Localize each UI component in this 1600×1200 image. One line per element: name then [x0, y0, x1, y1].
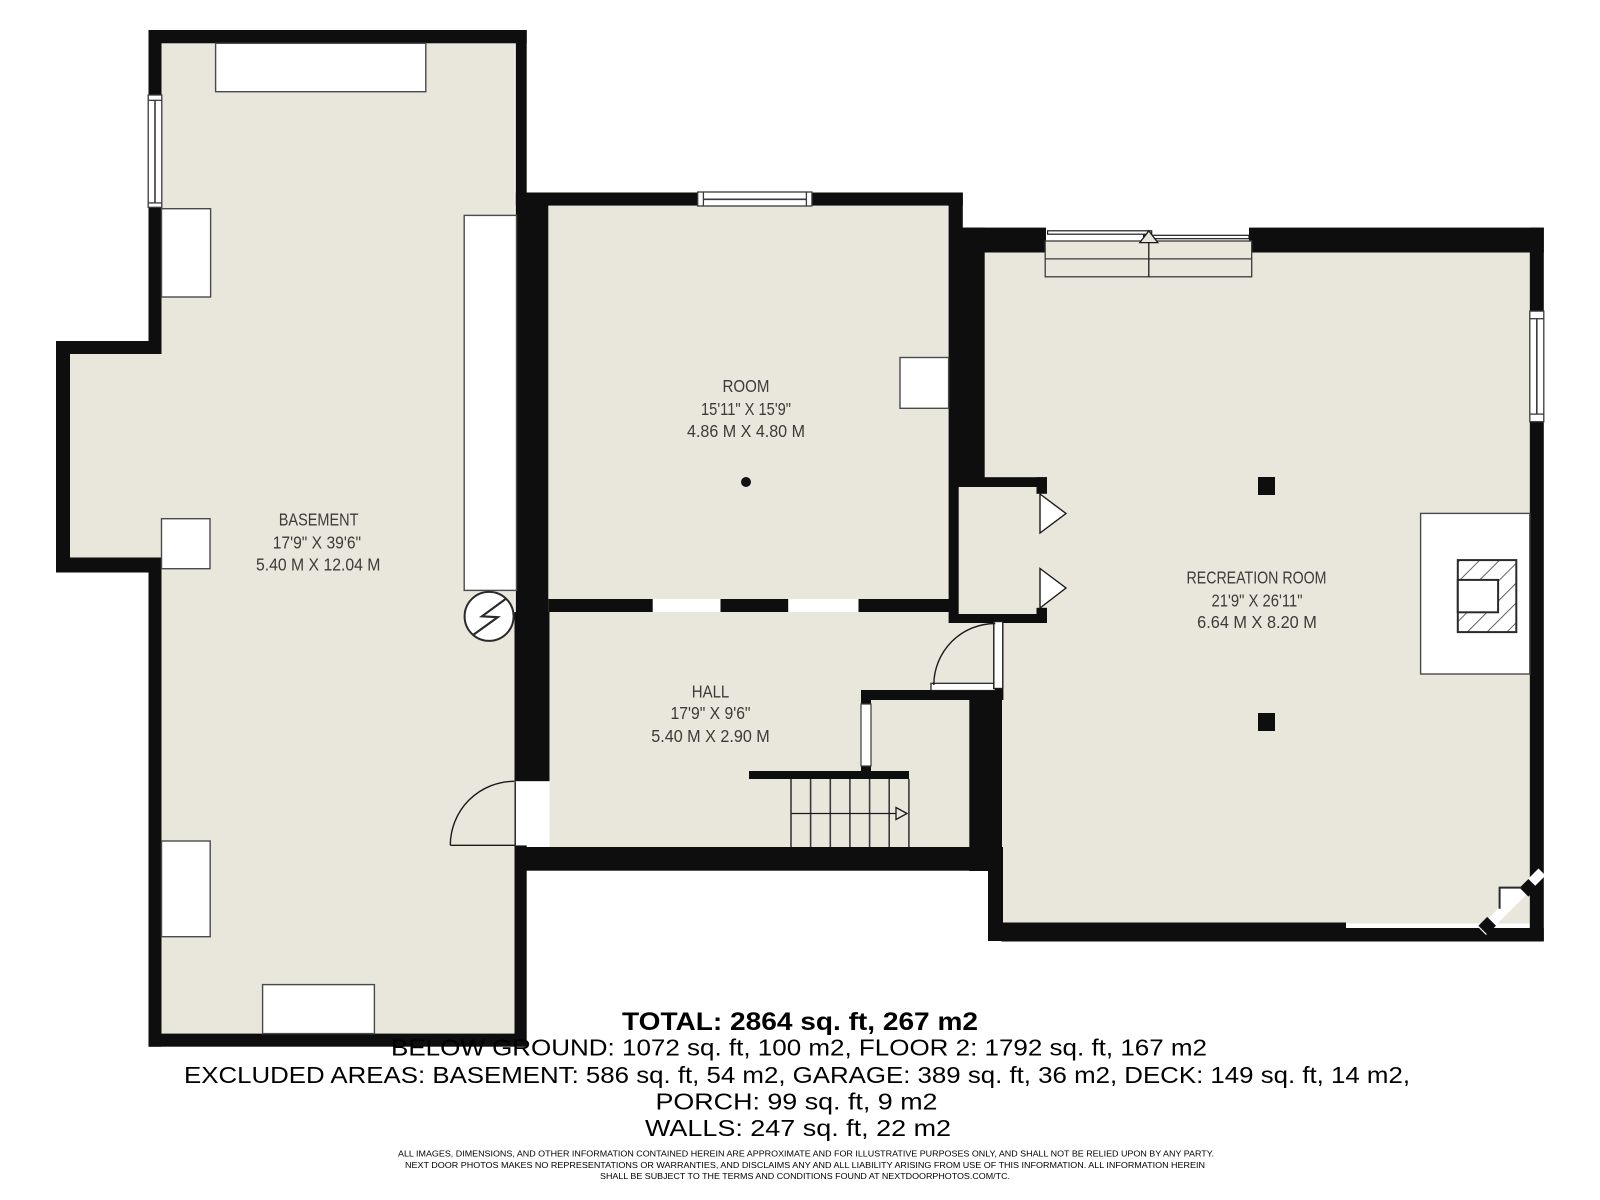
- svg-text:SHALL BE SUBJECT TO THE TERMS: SHALL BE SUBJECT TO THE TERMS AND CONDIT…: [600, 1172, 1010, 1181]
- svg-text:17'9" X 39'6": 17'9" X 39'6": [273, 533, 361, 553]
- svg-text:TOTAL: 2864 sq. ft, 267 m2: TOTAL: 2864 sq. ft, 267 m2: [622, 1008, 978, 1036]
- svg-text:4.86 M X 4.80 M: 4.86 M X 4.80 M: [687, 421, 805, 441]
- svg-text:HALL: HALL: [692, 682, 730, 702]
- svg-text:WALLS: 247 sq. ft, 22 m2: WALLS: 247 sq. ft, 22 m2: [645, 1115, 951, 1141]
- svg-text:15'11" X 15'9": 15'11" X 15'9": [701, 399, 791, 419]
- svg-text:5.40 M X 12.04 M: 5.40 M X 12.04 M: [256, 555, 380, 575]
- svg-text:BELOW GROUND: 1072 sq. ft, 100: BELOW GROUND: 1072 sq. ft, 100 m2, FLOOR…: [391, 1035, 1207, 1061]
- svg-text:NEXT DOOR PHOTOS MAKES NO REPR: NEXT DOOR PHOTOS MAKES NO REPRESENTATION…: [405, 1161, 1205, 1170]
- svg-text:RECREATION ROOM: RECREATION ROOM: [1187, 568, 1327, 588]
- svg-text:ALL IMAGES, DIMENSIONS, AND OT: ALL IMAGES, DIMENSIONS, AND OTHER INFORM…: [398, 1150, 1214, 1159]
- svg-text:17'9" X 9'6": 17'9" X 9'6": [671, 703, 751, 723]
- svg-text:EXCLUDED AREAS: BASEMENT: 586: EXCLUDED AREAS: BASEMENT: 586 sq. ft, 54…: [184, 1062, 1410, 1088]
- svg-text:BASEMENT: BASEMENT: [279, 510, 359, 530]
- svg-text:6.64 M X 8.20 M: 6.64 M X 8.20 M: [1197, 612, 1317, 632]
- svg-text:5.40 M X 2.90 M: 5.40 M X 2.90 M: [651, 726, 770, 746]
- svg-text:21'9" X 26'11": 21'9" X 26'11": [1212, 590, 1303, 610]
- svg-text:PORCH: 99 sq. ft, 9 m2: PORCH: 99 sq. ft, 9 m2: [656, 1089, 938, 1115]
- svg-text:ROOM: ROOM: [723, 376, 770, 396]
